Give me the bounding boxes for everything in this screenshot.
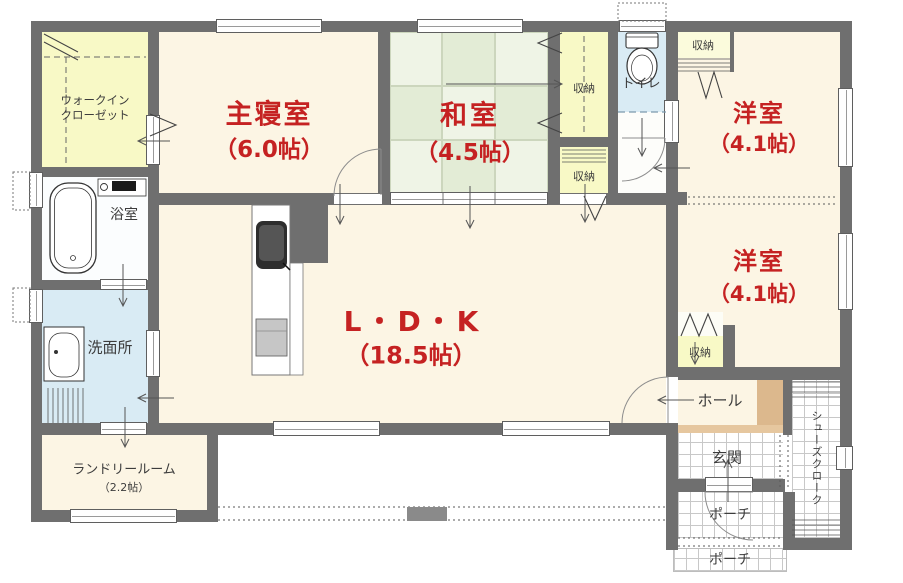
label-western-room-2: 洋室 — [733, 242, 785, 277]
wall-shoe-bottom — [783, 538, 852, 550]
label-porch-upper: ポーチ — [709, 504, 751, 524]
wall-left — [31, 21, 42, 522]
label-laundry: ランドリールーム — [72, 459, 176, 478]
label-master-bedroom-size: （6.0帖） — [214, 130, 324, 164]
opening-closet-fold — [560, 194, 606, 204]
label-storage-west2: 収納 — [689, 344, 711, 360]
wall-west2-closet-right — [723, 325, 735, 368]
label-ldk: L・D・K — [344, 300, 483, 340]
wall-shoe-left-upper — [783, 380, 792, 435]
wall-hall-top — [666, 367, 852, 380]
wall-washitsu-closet — [548, 21, 560, 205]
door-western1-sliding — [664, 100, 679, 143]
door-washroom — [146, 330, 160, 377]
label-bathroom: 浴室 — [110, 204, 138, 224]
wall-closet-mid — [548, 137, 618, 147]
toilet-front-corridor — [618, 112, 666, 193]
label-toilet: トイレ — [621, 73, 660, 92]
veranda-post — [407, 507, 447, 521]
dotted-box-west-2 — [13, 288, 30, 322]
wall-kitchen-stub — [290, 202, 328, 263]
label-japanese-room: 和室 — [440, 94, 500, 133]
wall-west1-closet-edge — [730, 32, 734, 72]
window-ldk-south-1 — [273, 421, 380, 436]
label-storage-west1: 収納 — [692, 37, 714, 53]
label-wic-line1: ウォークイン — [61, 92, 130, 108]
wall-genkan-left — [676, 479, 705, 492]
opening-bedroom-door — [334, 194, 382, 204]
label-japanese-room-size: （4.5帖） — [415, 133, 525, 167]
window-western2-east — [838, 233, 853, 310]
wall-bedroom-washitsu — [378, 21, 390, 205]
label-washroom: 洗面所 — [87, 337, 132, 358]
entrance-step — [678, 425, 783, 433]
label-western-room-1-size: （4.1帖） — [709, 128, 809, 158]
label-shoe-closet: シューズクローク — [808, 410, 824, 506]
floor-plan: ウォークイン クローゼット 主寝室 （6.0帖） 和室 （4.5帖） 洋室 （4… — [0, 0, 903, 583]
door-washitsu-sliding — [390, 192, 548, 205]
wall-wic-bottom — [42, 167, 148, 177]
label-porch-lower: ポーチ — [709, 549, 751, 569]
door-bath — [100, 279, 147, 290]
label-western-room-2-size: （4.1帖） — [709, 278, 809, 308]
label-hall: ホール — [697, 390, 742, 411]
wall-stub-west-rooms — [666, 192, 687, 205]
door-walk-in-closet — [146, 115, 160, 165]
label-storage-japanese: 収納 — [573, 80, 595, 96]
wall-closet-toilet — [608, 21, 618, 205]
label-ldk-size: （18.5帖） — [345, 336, 476, 371]
opening-hall-door — [666, 377, 678, 423]
window-bedroom-north — [216, 19, 322, 33]
label-laundry-size: （2.2帖） — [99, 479, 150, 495]
dotted-box-west-1 — [13, 172, 30, 210]
window-laundry-south — [70, 509, 177, 523]
window-bath-west — [29, 172, 43, 208]
closet-western-2-fold-area — [678, 312, 723, 336]
window-washroom-west — [29, 289, 43, 323]
window-toilet-north — [619, 20, 666, 32]
window-washitsu-north — [417, 19, 523, 33]
window-western1-east — [838, 88, 853, 167]
label-master-bedroom: 主寝室 — [226, 93, 313, 132]
door-entrance — [705, 477, 753, 492]
label-western-room-1: 洋室 — [733, 94, 785, 129]
wall-laundry-right — [207, 435, 218, 522]
window-shoecloset-east — [836, 446, 853, 470]
label-storage-ldk: 収納 — [573, 168, 595, 184]
label-wic-line2: クローゼット — [61, 107, 130, 123]
wall-genkan-right — [753, 479, 785, 492]
room-bathroom — [42, 177, 148, 280]
hall-step-block — [757, 380, 783, 425]
door-washroom-laundry — [100, 422, 147, 435]
window-ldk-south-2 — [502, 421, 610, 436]
label-entrance: 玄関 — [712, 447, 742, 468]
dotted-box-toilet-vent — [618, 3, 666, 21]
